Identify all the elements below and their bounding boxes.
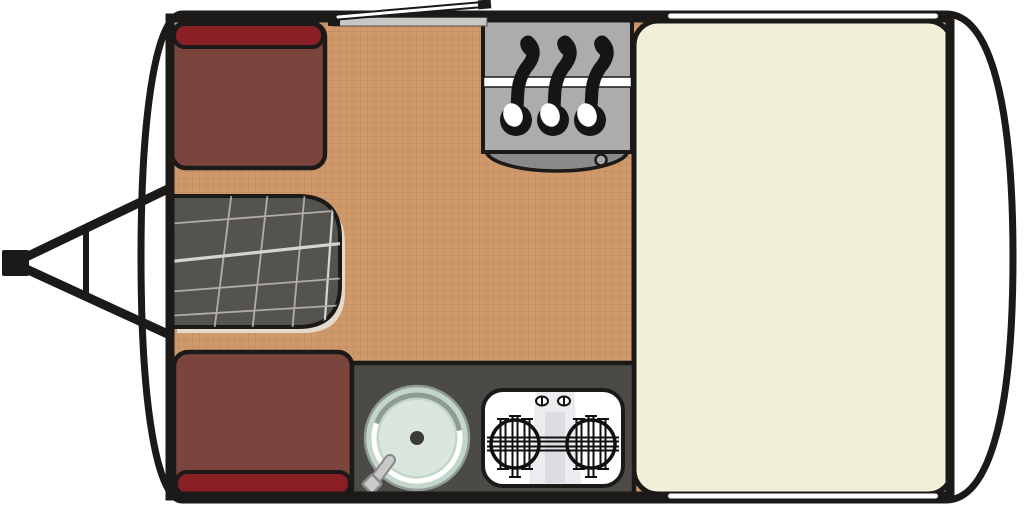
wardrobe-unit — [483, 20, 632, 171]
sink-drain — [410, 431, 424, 445]
stove — [483, 390, 623, 486]
door-edge — [478, 0, 492, 9]
seat-bottom-left — [174, 352, 352, 497]
wardrobe-knob — [596, 155, 607, 166]
dinette-table — [166, 190, 346, 333]
window-top — [668, 14, 938, 19]
caravan-floorplan — [0, 0, 1024, 512]
seat-top-left — [172, 23, 325, 168]
kitchen-counter — [352, 363, 634, 496]
seat-backrest — [174, 24, 323, 47]
stove-knob — [536, 396, 548, 406]
floorplan-svg — [0, 0, 1024, 512]
bed — [634, 21, 952, 494]
stove-knob — [558, 396, 570, 406]
coupling-head — [2, 250, 29, 276]
window-bottom — [668, 494, 938, 499]
